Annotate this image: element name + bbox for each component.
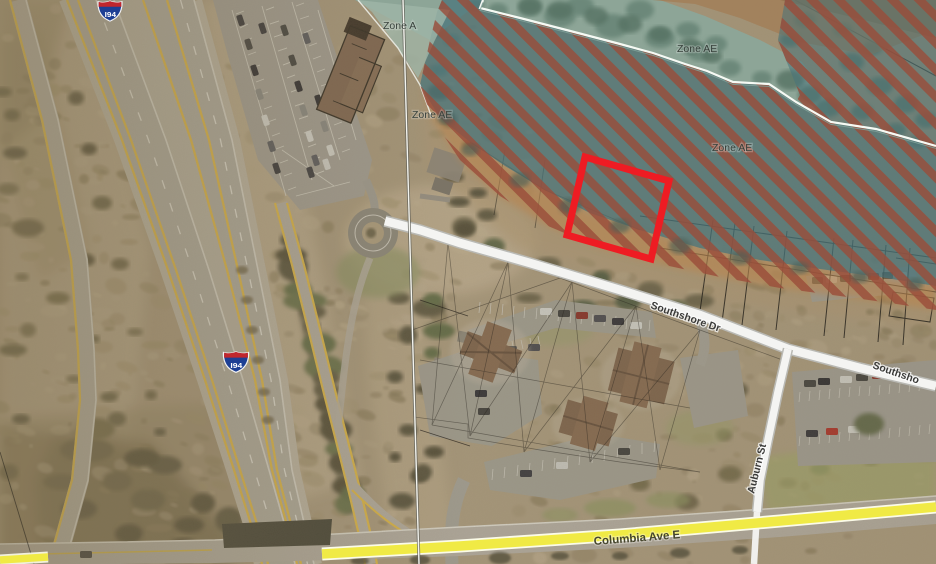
svg-text:Zone AE: Zone AE — [677, 43, 717, 55]
svg-text:Zone A: Zone A — [383, 20, 416, 32]
svg-text:I94: I94 — [230, 362, 243, 370]
svg-text:Zone AE: Zone AE — [412, 109, 452, 121]
svg-text:Zone AE: Zone AE — [712, 142, 752, 154]
svg-text:I94: I94 — [105, 10, 117, 18]
